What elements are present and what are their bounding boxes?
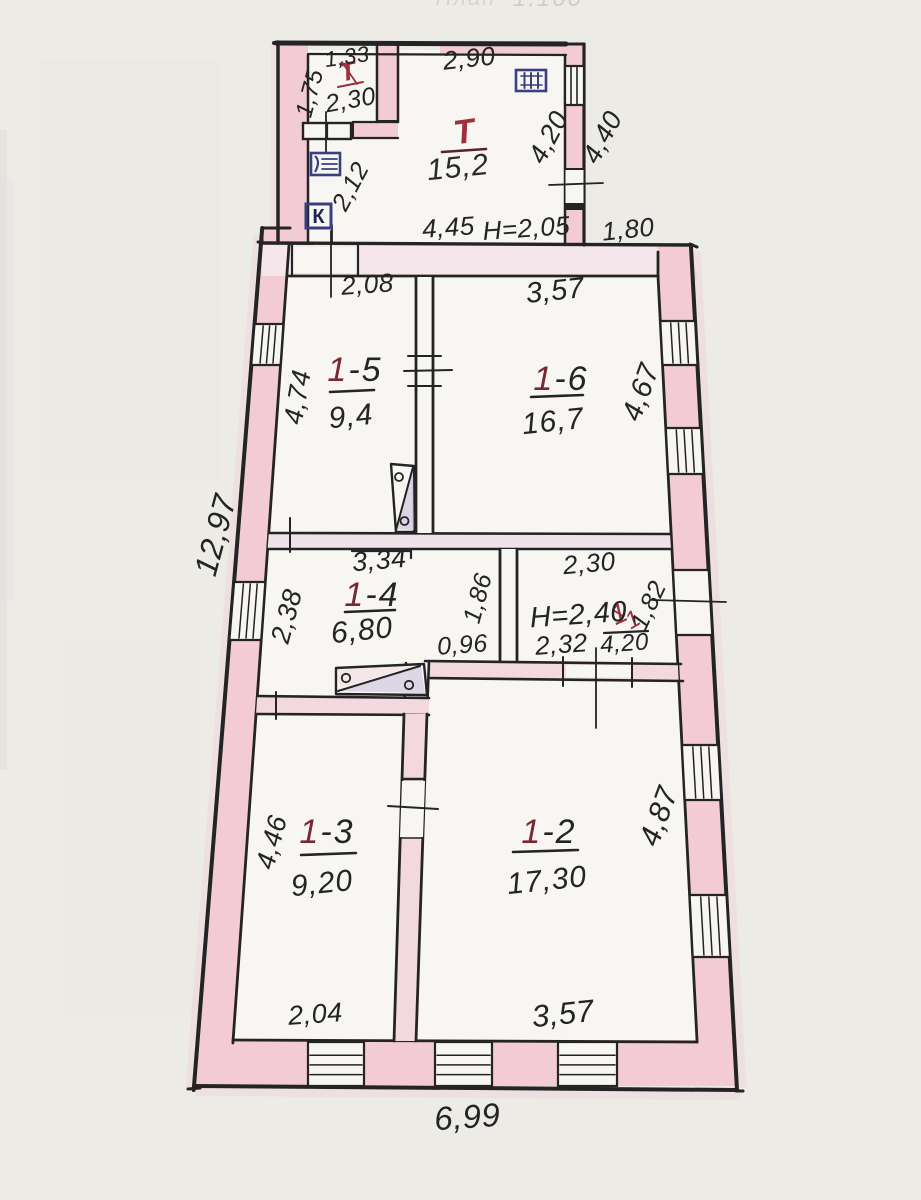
svg-text:1,80: 1,80 (600, 211, 655, 246)
svg-text:2,90: 2,90 (440, 40, 496, 75)
svg-text:3,57: 3,57 (524, 272, 587, 310)
svg-text:4,45: 4,45 (421, 210, 476, 244)
svg-text:3,34: 3,34 (351, 543, 408, 578)
svg-text:К: К (312, 206, 325, 228)
svg-text:2,30: 2,30 (561, 546, 617, 581)
svg-text:План: План (436, 0, 497, 10)
svg-text:1-5: 1-5 (327, 351, 382, 389)
svg-text:2,08: 2,08 (339, 267, 395, 301)
svg-text:3,57: 3,57 (530, 993, 597, 1034)
svg-text:1-6: 1-6 (533, 360, 588, 398)
svg-text:2,32: 2,32 (533, 627, 589, 661)
svg-text:1:100: 1:100 (513, 0, 583, 12)
svg-text:9,4: 9,4 (327, 398, 375, 435)
svg-text:15,2: 15,2 (425, 148, 490, 187)
svg-text:Н=2,05: Н=2,05 (482, 210, 571, 246)
svg-text:1-3: 1-3 (299, 813, 354, 851)
svg-text:0,96: 0,96 (436, 629, 489, 660)
svg-text:6,99: 6,99 (433, 1096, 502, 1138)
svg-text:9,20: 9,20 (289, 864, 354, 903)
svg-text:1-4: 1-4 (344, 576, 399, 614)
svg-text:16,7: 16,7 (520, 402, 586, 441)
svg-text:1-2: 1-2 (521, 813, 576, 851)
svg-text:6,80: 6,80 (329, 611, 394, 650)
svg-text:2,04: 2,04 (286, 997, 344, 1031)
